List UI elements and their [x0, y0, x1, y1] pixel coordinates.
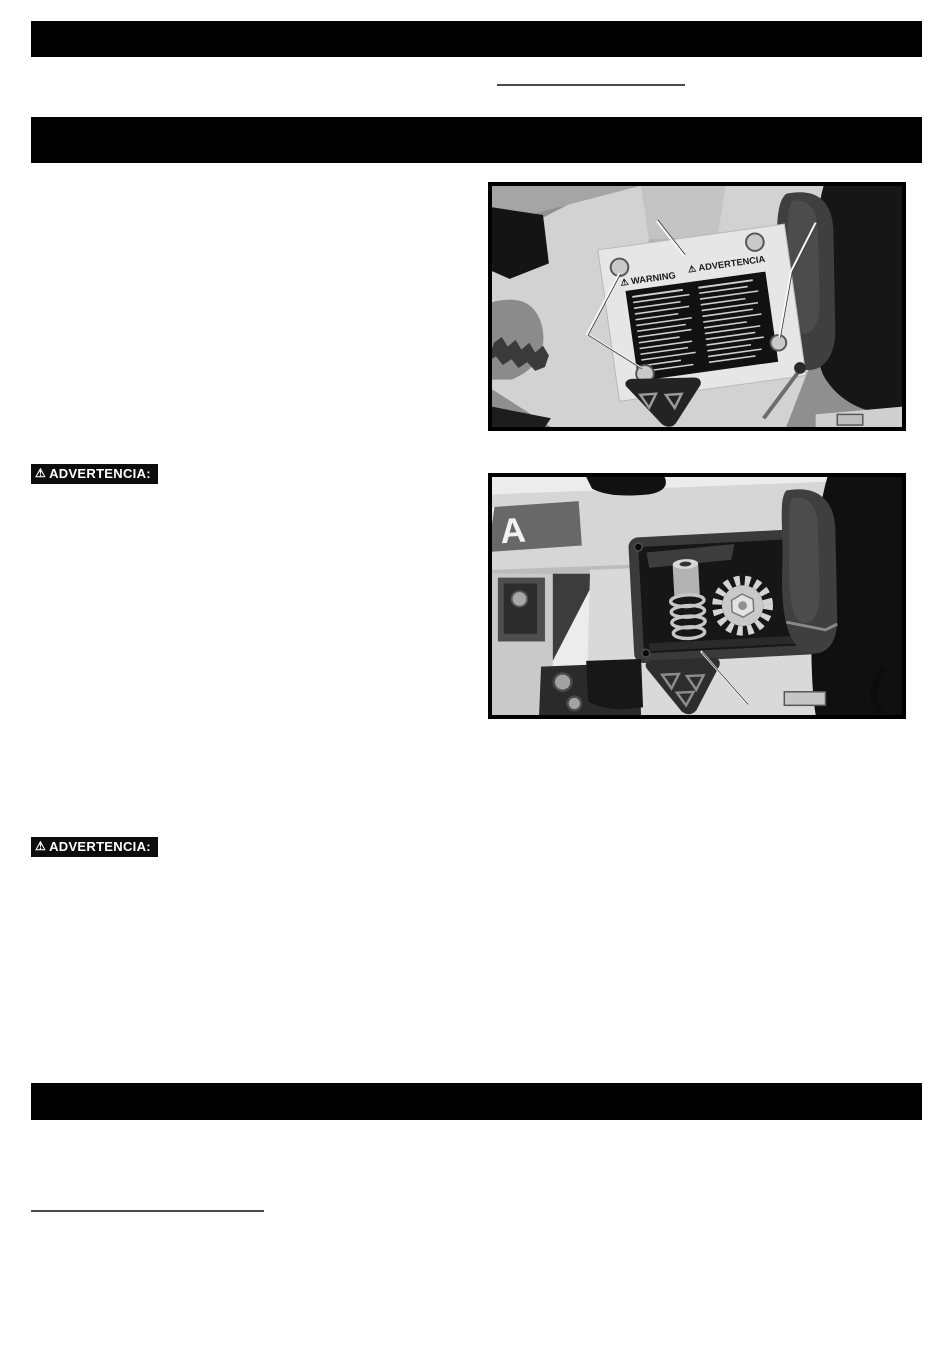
warning-triangle-icon: ⚠ [35, 839, 46, 853]
screw-icon [771, 335, 787, 350]
hex-bolt-icon [554, 673, 572, 690]
underline-blank-top [497, 84, 685, 86]
clamp-cylinder [586, 659, 643, 709]
section-header-bar-bottom [31, 1083, 922, 1120]
warning-triangle-icon: ⚠ [687, 264, 697, 275]
figure-warning-label-photo: ⚠ WARNING ⚠ ADVERTENCIA [488, 182, 906, 431]
machine-column [641, 186, 725, 239]
figure1-illustration: ⚠ WARNING ⚠ ADVERTENCIA [492, 186, 902, 427]
figure2-illustration: A [492, 477, 902, 715]
warning-badge: ⚠ADVERTENCIA: [31, 464, 158, 484]
warning-badge-label: ADVERTENCIA: [49, 839, 151, 854]
cylinder-highlight [789, 497, 820, 623]
warning-label-plate: ⚠ WARNING ⚠ ADVERTENCIA [598, 224, 806, 401]
section-header-bar-top [31, 21, 922, 57]
warning-badge-label: ADVERTENCIA: [49, 466, 151, 481]
screw-icon [746, 233, 764, 250]
hex-bolt-icon [568, 697, 582, 711]
brand-logo-plate: A [492, 501, 582, 552]
hex-bolt-icon [512, 591, 528, 606]
figure-gear-access-photo: A [488, 473, 906, 719]
corner-screw-icon [642, 649, 650, 657]
warning-triangle-icon: ⚠ [620, 277, 630, 288]
underline-blank-bottom [31, 1210, 264, 1212]
corner-screw-icon [634, 543, 642, 551]
warning-triangle-icon: ⚠ [35, 466, 46, 480]
bracket-part [837, 414, 863, 425]
rod-knob [794, 362, 806, 374]
document-page: ⚠ WARNING ⚠ ADVERTENCIA [0, 0, 950, 1360]
warning-badge: ⚠ADVERTENCIA: [31, 837, 158, 857]
section-header-bar-middle [31, 117, 922, 163]
bracket-part [784, 692, 825, 706]
logo-letter: A [499, 511, 527, 551]
